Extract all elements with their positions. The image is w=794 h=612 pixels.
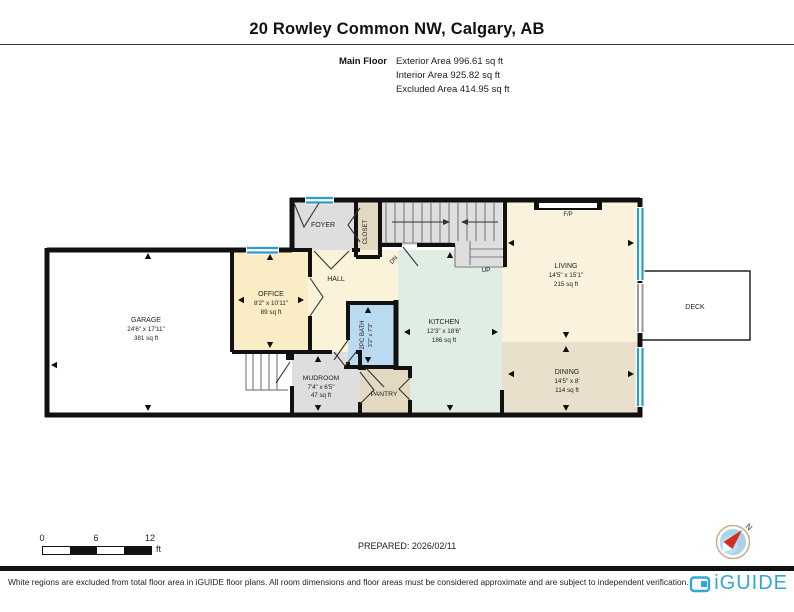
room-area-mudroom: 47 sq ft — [311, 392, 332, 399]
room-area-dining: 114 sq ft — [555, 387, 579, 394]
stairs-up-label: UP — [481, 267, 490, 274]
floorplan-drawing: GARAGE 24'6" x 17'11" 381 sq ft OFFICE 8… — [30, 185, 765, 430]
interior-area: Interior Area 925.82 sq ft — [396, 69, 510, 83]
window-living — [636, 207, 645, 281]
room-dims-dining: 14'5" x 8' — [554, 378, 579, 385]
excluded-area: Excluded Area 414.95 sq ft — [396, 83, 510, 97]
room-label-pantry: PANTRY — [371, 391, 398, 398]
scale-tick-0: 0 — [32, 533, 52, 543]
window-foyer — [305, 196, 334, 205]
room-dims-living: 14'5" x 15'1" — [549, 272, 584, 279]
iguide-logo-icon — [689, 574, 711, 594]
room-label-office: OFFICE — [258, 291, 284, 298]
footer-divider — [0, 566, 794, 571]
floor-area-summary: Exterior Area 996.61 sq ft Interior Area… — [396, 55, 510, 97]
exterior-area: Exterior Area 996.61 sq ft — [396, 55, 510, 69]
scale-tick-6: 6 — [86, 533, 106, 543]
prepared-date: PREPARED: 2026/02/11 — [358, 541, 456, 551]
room-label-bath: 2PC BATH — [360, 321, 366, 350]
scale-tick-12: 12 — [140, 533, 160, 543]
scale-bar: 0 6 12 ft — [42, 533, 212, 557]
iguide-logo-text: iGUIDE — [714, 572, 788, 595]
room-dims-office: 8'2" x 10'11" — [254, 300, 288, 307]
room-dims-garage: 24'6" x 17'11" — [127, 326, 165, 333]
room-label-closet: CLOSET — [362, 219, 369, 244]
compass-icon: N — [709, 514, 759, 566]
page-title: 20 Rowley Common NW, Calgary, AB — [0, 20, 794, 39]
window-office — [246, 246, 279, 255]
room-label-mudroom: MUDROOM — [303, 375, 340, 382]
room-label-garage: GARAGE — [131, 317, 161, 324]
room-dims-mudroom: 7'4" x 6'5" — [307, 384, 334, 391]
fireplace-label: F/P — [563, 212, 572, 218]
floorplan-page: 20 Rowley Common NW, Calgary, AB Main Fl… — [0, 0, 794, 612]
room-living — [502, 200, 640, 342]
room-dims-kitchen: 12'3" x 18'6" — [427, 328, 462, 335]
room-dims-bath: 3'2" x 7'3" — [368, 323, 374, 347]
room-label-deck: DECK — [685, 304, 705, 311]
room-label-living: LIVING — [555, 263, 578, 270]
room-area-living: 215 sq ft — [554, 281, 578, 288]
footer-disclaimer: White regions are excluded from total fl… — [8, 577, 689, 587]
iguide-logo: iGUIDE — [689, 572, 788, 595]
scale-bar-segments — [42, 546, 152, 555]
fireplace — [534, 201, 602, 210]
scale-unit: ft — [156, 544, 161, 554]
room-label-foyer: FOYER — [311, 222, 335, 229]
room-area-office: 89 sq ft — [261, 309, 282, 316]
room-area-kitchen: 186 sq ft — [432, 337, 456, 344]
room-area-garage: 381 sq ft — [134, 335, 158, 342]
title-divider — [0, 44, 794, 45]
floor-name: Main Floor — [257, 55, 387, 69]
room-label-kitchen: KITCHEN — [429, 319, 460, 326]
window-dining — [636, 347, 645, 407]
room-label-hall: HALL — [327, 276, 345, 283]
patio-door — [636, 283, 645, 333]
room-label-dining: DINING — [555, 369, 580, 376]
